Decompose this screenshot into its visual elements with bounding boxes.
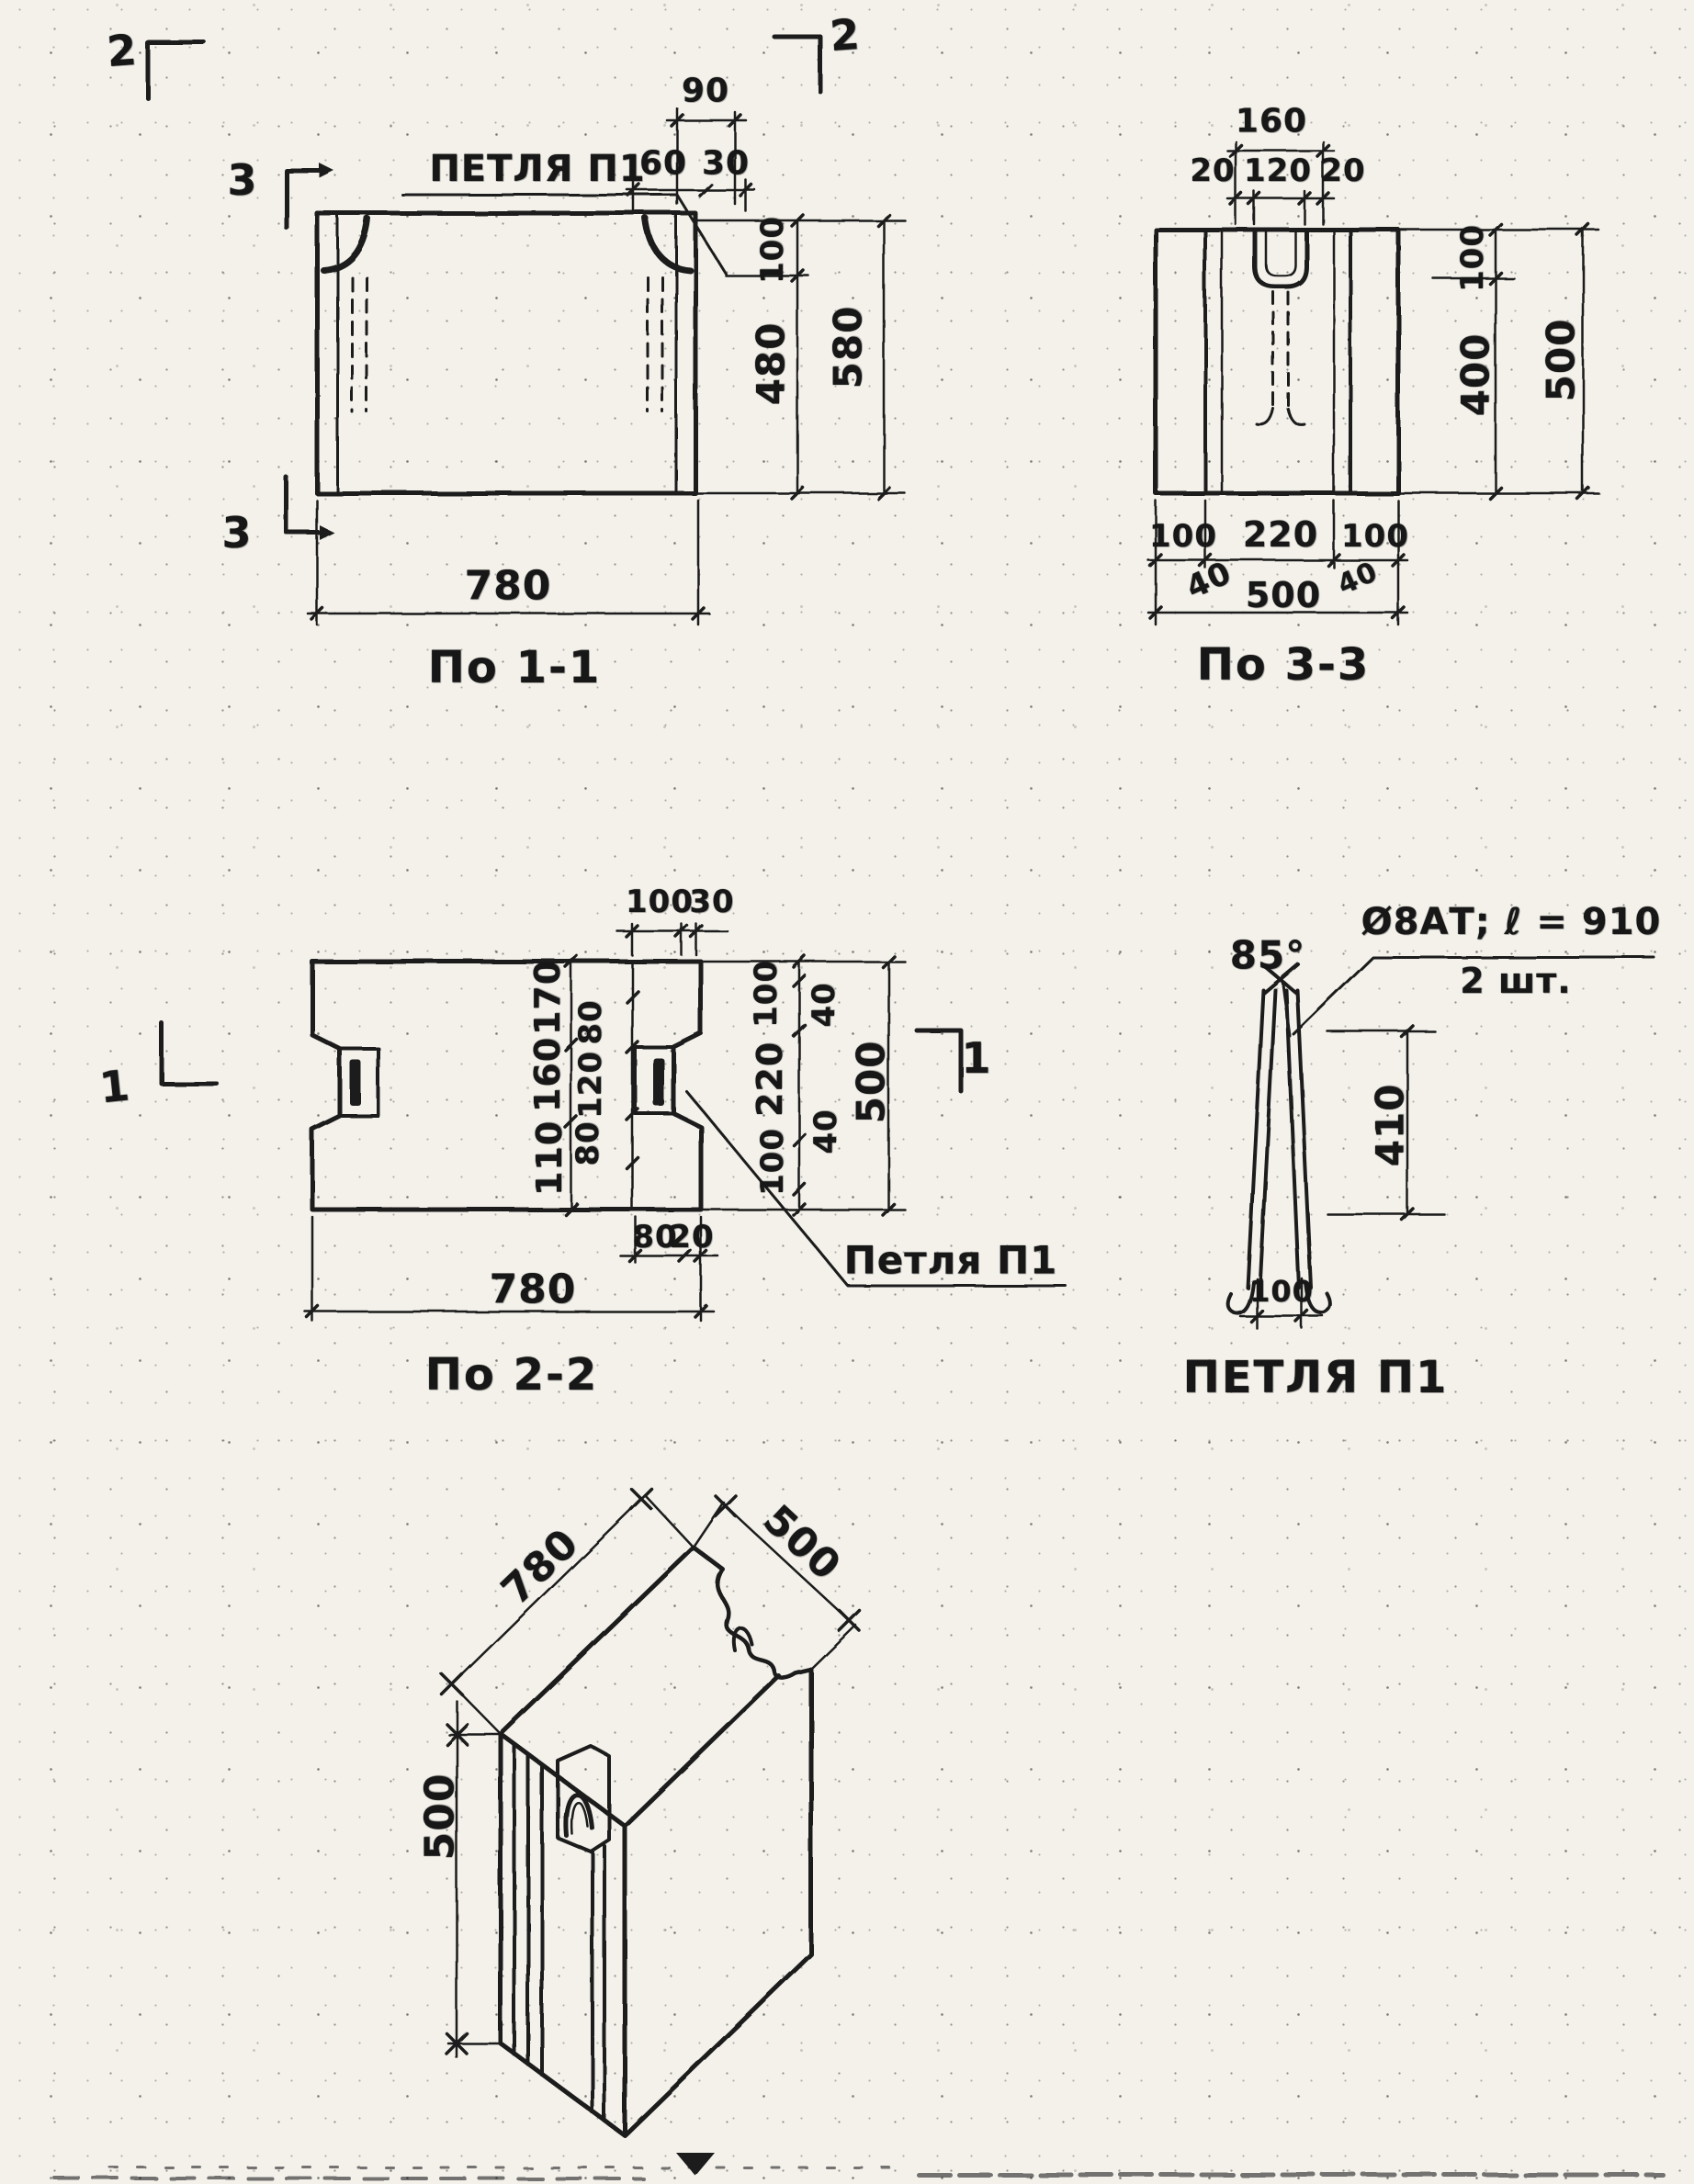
dim-80-inner-top: 80 bbox=[572, 999, 609, 1044]
dim-410: 410 bbox=[1368, 1084, 1413, 1167]
scan-artifacts bbox=[55, 2167, 1663, 2178]
dim-100-bottom-right: 100 bbox=[1341, 518, 1409, 555]
section-marker-3-top: 3 bbox=[227, 155, 257, 205]
dim-120-inner: 120 bbox=[572, 1051, 609, 1119]
dim-90: 90 bbox=[682, 73, 729, 110]
dim-30-top-v3: 30 bbox=[689, 884, 734, 920]
dim-20-bottom: 20 bbox=[669, 1219, 714, 1255]
dim-20-left: 20 bbox=[1190, 152, 1235, 189]
dim-110: 110 bbox=[529, 1120, 570, 1196]
view-title-1-1: По 1-1 bbox=[428, 642, 602, 693]
dim-170: 170 bbox=[527, 960, 568, 1035]
dim-780-v1: 780 bbox=[465, 563, 552, 610]
dim-160-v3: 160 bbox=[527, 1037, 568, 1112]
loop-angle-label: 85° bbox=[1230, 933, 1305, 978]
rebar-note-line1: Ø8АТ; ℓ = 910 bbox=[1361, 901, 1662, 943]
iso-dim-500-left: 500 bbox=[417, 1773, 464, 1861]
rebar-note-line2: 2 шт. bbox=[1460, 961, 1572, 1001]
section-marker-1-left: 1 bbox=[97, 1060, 132, 1112]
section-marker-2-left: 2 bbox=[106, 25, 140, 76]
dim-30: 30 bbox=[702, 145, 750, 183]
dim-220-v2: 220 bbox=[1243, 514, 1318, 555]
blueprint-page: 2 2 3 3 ПЕТЛЯ П1 90 60 30 100 480 580 78… bbox=[0, 0, 1694, 2184]
dim-500-bottom: 500 bbox=[1246, 575, 1321, 615]
loop-callout-label-v1: ПЕТЛЯ П1 bbox=[429, 148, 645, 190]
dim-40-right-bottom: 40 bbox=[807, 1109, 844, 1154]
dim-100-right-bottom: 100 bbox=[754, 1128, 791, 1196]
dim-20-right: 20 bbox=[1320, 152, 1365, 189]
dim-500-right-v3: 500 bbox=[849, 1041, 894, 1124]
dim-100-right-top: 100 bbox=[748, 960, 785, 1028]
section-marker-2-right: 2 bbox=[829, 9, 863, 61]
dim-100-loop: 100 bbox=[1249, 1274, 1314, 1309]
dim-80-inner-bottom: 80 bbox=[570, 1120, 606, 1165]
dim-100-top-v3: 100 bbox=[626, 884, 694, 920]
dim-400: 400 bbox=[1453, 333, 1498, 417]
dim-220-right: 220 bbox=[750, 1041, 790, 1117]
dim-480: 480 bbox=[749, 322, 794, 406]
dim-780-v3: 780 bbox=[490, 1266, 577, 1313]
loop-callout-label-v3: Петля П1 bbox=[844, 1238, 1058, 1283]
dim-500-v2: 500 bbox=[1539, 319, 1584, 402]
section-marker-3-bottom: 3 bbox=[221, 508, 252, 557]
view-title-3-3: По 3-3 bbox=[1197, 639, 1371, 691]
dim-40-right-top: 40 bbox=[806, 982, 842, 1027]
dim-160: 160 bbox=[1236, 103, 1307, 141]
dim-100-v1: 100 bbox=[754, 216, 791, 284]
dim-120: 120 bbox=[1244, 152, 1312, 189]
section-marker-1-right: 1 bbox=[961, 1033, 991, 1083]
view-title-2-2: По 2-2 bbox=[425, 1349, 599, 1401]
detail-title: ПЕТЛЯ П1 bbox=[1183, 1352, 1449, 1403]
dim-100-bottom-left: 100 bbox=[1149, 518, 1217, 555]
dim-580: 580 bbox=[826, 306, 871, 389]
dim-60: 60 bbox=[639, 145, 687, 183]
dim-100-v2: 100 bbox=[1454, 224, 1491, 292]
loop-detail-linework bbox=[1228, 957, 1654, 1328]
